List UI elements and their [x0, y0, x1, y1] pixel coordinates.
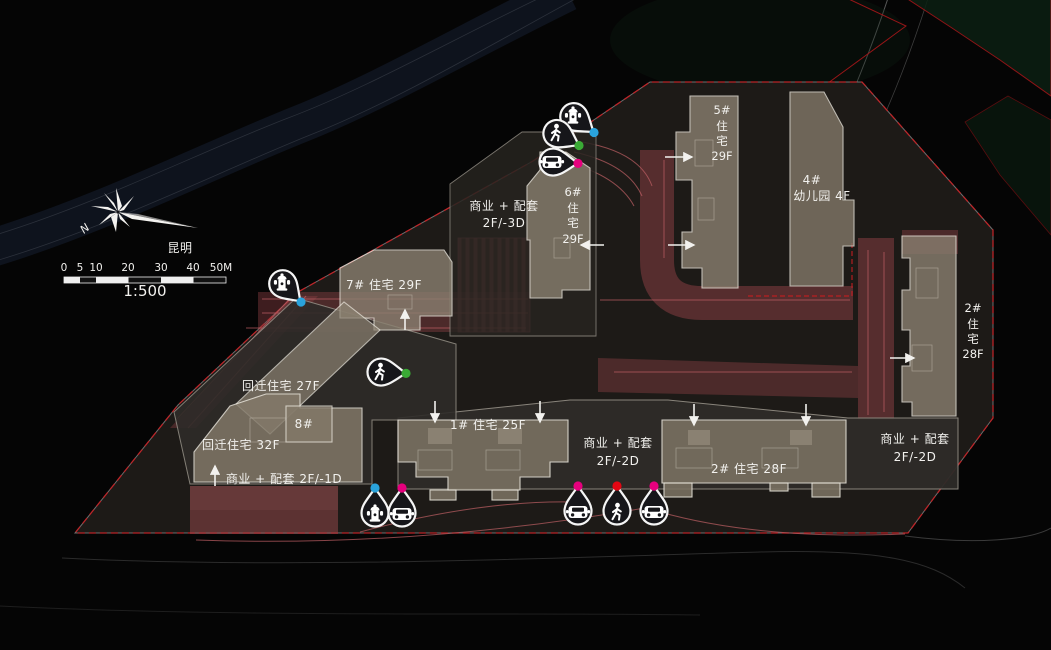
building-1-wing	[430, 490, 456, 500]
car-icon	[566, 506, 590, 518]
building-7-label: 7# 住宅 29F	[346, 277, 422, 292]
entrance-dot	[296, 297, 305, 306]
entrance-dot	[401, 369, 410, 378]
entrance-dot	[612, 481, 621, 490]
commercial-mid-label: 2F/-2D	[597, 454, 640, 468]
building-6-label: 6#	[565, 185, 582, 199]
scale-tick: 40	[186, 262, 199, 274]
building-huiqian32-label: 回迁住宅 32F	[202, 437, 280, 452]
building-1-label: 1# 住宅 25F	[450, 417, 526, 432]
commercial-left-label: 商业 + 配套 2F/-1D	[226, 471, 342, 486]
building-2-south-label: 2# 住宅 28F	[711, 461, 787, 476]
building-2-east-label: 28F	[962, 347, 983, 361]
scale-tick: 20	[121, 262, 134, 274]
scale-tick: 0	[61, 262, 68, 274]
building-2-south-wing	[812, 483, 840, 497]
scale-tick: 5	[77, 262, 84, 274]
building-8-label: 8#	[295, 417, 314, 431]
building-5-label: 宅	[716, 134, 728, 148]
building-2-east-label: 2#	[965, 301, 982, 315]
car-icon	[642, 506, 666, 518]
entrance-dot	[573, 481, 582, 490]
building-2-south-wing	[664, 483, 692, 497]
city-label: 昆明	[167, 241, 192, 255]
building-4-label: 幼儿园 4F	[793, 189, 850, 203]
entrance-dot	[370, 483, 379, 492]
building-huiqian27-label: 回迁住宅 27F	[242, 378, 320, 393]
building-1-wing	[492, 490, 518, 500]
entrance-dot	[573, 159, 582, 168]
entrance-dot	[589, 128, 598, 137]
building-4-label: 4#	[803, 173, 822, 187]
building-6-label: 29F	[562, 232, 583, 246]
scale-ratio-label: 1:500	[123, 282, 166, 300]
building-6-label: 住	[567, 201, 579, 215]
site-plan-canvas: 5# 住 宅 29F 4# 幼儿园 4F 6# 住 宅 29F 2# 住 宅 2…	[0, 0, 1051, 650]
commercial-right-label: 商业 + 配套	[880, 431, 949, 446]
building-2-east-footprint	[902, 236, 956, 416]
scale-tick: 50M	[210, 262, 232, 274]
scale-tick: 10	[89, 262, 102, 274]
building-5-label: 29F	[711, 149, 732, 163]
commercial-top-label: 2F/-3D	[483, 216, 526, 230]
commercial-top-label: 商业 + 配套	[469, 198, 538, 213]
entrance-dot	[397, 483, 406, 492]
building-2-east-label: 宅	[967, 332, 979, 346]
commercial-mid-label: 商业 + 配套	[583, 435, 652, 450]
entrance-dot	[649, 481, 658, 490]
building-6-label: 宅	[567, 216, 579, 230]
master-plan-drawing: 5# 住 宅 29F 4# 幼儿园 4F 6# 住 宅 29F 2# 住 宅 2…	[0, 0, 1051, 650]
scale-tick: 30	[154, 262, 167, 274]
commercial-right-label: 2F/-2D	[894, 450, 937, 464]
building-2-south-wing	[770, 483, 788, 491]
building-2-east-label: 住	[967, 317, 979, 331]
building-5-label: 住	[716, 119, 728, 133]
car-icon	[390, 508, 414, 520]
car-icon	[540, 156, 564, 168]
entrance-dot	[574, 141, 583, 150]
building-5-label: 5#	[714, 103, 731, 117]
